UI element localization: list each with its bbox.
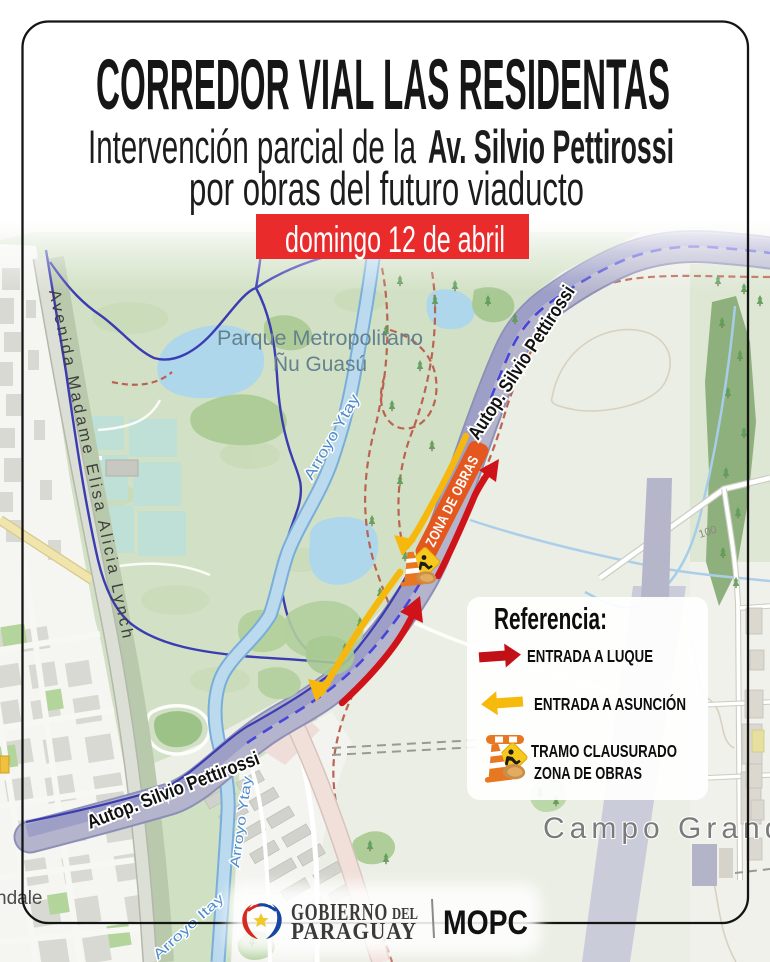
svg-text:CORREDOR VIAL LAS RESIDENTAS: CORREDOR VIAL LAS RESIDENTAS [96,46,670,125]
svg-text:PARAGUAY: PARAGUAY [291,919,417,945]
svg-text:Ñu Guasú: Ñu Guasú [273,352,367,376]
svg-text:Campo Grande: Campo Grande [543,812,770,845]
svg-text:ENTRADA A ASUNCIÓN: ENTRADA A ASUNCIÓN [534,693,686,714]
svg-text:Parque Metropolitano: Parque Metropolitano [217,327,423,350]
svg-text:MOPC: MOPC [443,904,528,942]
svg-text:TRAMO CLAUSURADO: TRAMO CLAUSURADO [531,741,677,761]
svg-text:Referencia:: Referencia: [494,601,607,636]
svg-text:ZONA DE OBRAS: ZONA DE OBRAS [534,763,642,783]
svg-text:ENTRADA A LUQUE: ENTRADA A LUQUE [527,646,653,666]
svg-text:ndale: ndale [0,888,43,909]
svg-text:domingo 12 de abril: domingo 12 de abril [285,219,505,260]
svg-text:por obras del futuro viaducto: por obras del futuro viaducto [189,162,584,215]
